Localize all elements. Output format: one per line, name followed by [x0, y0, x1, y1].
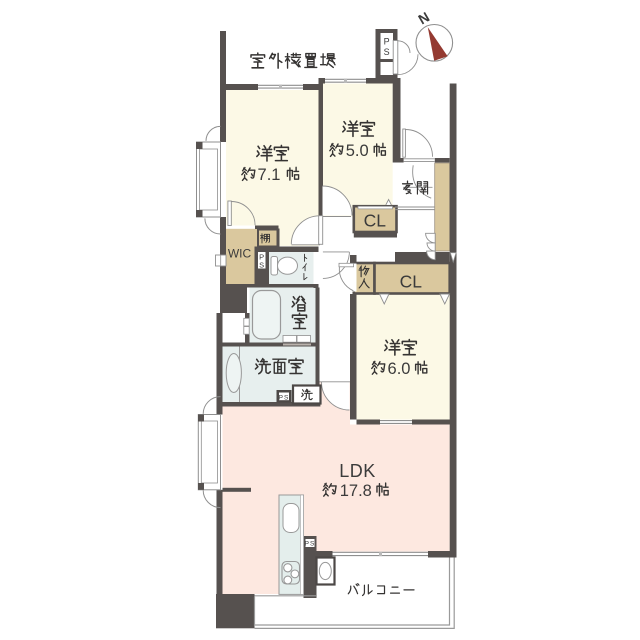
svg-text:S: S	[259, 261, 264, 270]
svg-text:CL: CL	[364, 211, 387, 231]
svg-text:LDK: LDK	[339, 461, 376, 481]
svg-text:PS: PS	[279, 394, 290, 401]
svg-text:PS: PS	[305, 541, 316, 548]
svg-text:WIC: WIC	[228, 246, 252, 260]
svg-text:17.8: 17.8	[340, 482, 372, 500]
svg-text:S: S	[384, 47, 390, 57]
svg-text:CL: CL	[400, 272, 423, 292]
svg-text:6.0: 6.0	[388, 360, 411, 378]
svg-text:5.0: 5.0	[346, 142, 369, 160]
svg-text:P: P	[384, 37, 390, 47]
svg-text:7.1: 7.1	[258, 166, 281, 184]
